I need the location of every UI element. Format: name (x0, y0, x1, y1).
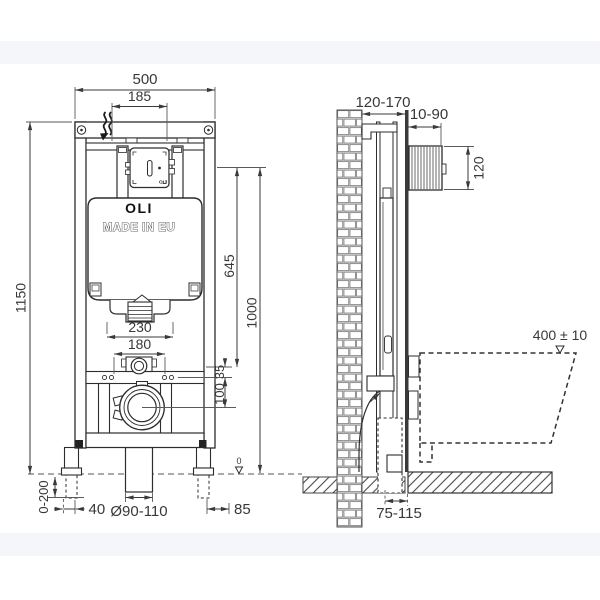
floor-level-marker: 0 (236, 456, 243, 474)
inlet-connector (122, 357, 157, 374)
installation-frame-drawing: OLI OLI MADE IN EU (0, 0, 600, 600)
dim-frame-depth: 120-170 (355, 94, 410, 114)
dim-bowl-height: 400 ± 10 (533, 327, 588, 353)
right-foot (194, 448, 214, 499)
dim-plate-height: 120 (444, 147, 487, 190)
dim-foot-overhang: 40 (54, 499, 105, 518)
side-view (303, 110, 576, 527)
dim-1000-label: 1000 (244, 297, 260, 328)
floor-right (408, 472, 552, 493)
dim-bowl-height-label: 400 ± 10 (533, 327, 588, 343)
dim-645-label: 645 (221, 254, 237, 278)
dim-100-label: 100 (212, 383, 227, 405)
support-bar (367, 376, 394, 391)
dim-flush-plate-width-label: 185 (128, 88, 152, 104)
dim-foot-adjust-label: 0-200 (36, 480, 51, 513)
inspection-box: OLI (126, 148, 175, 188)
flush-slot (148, 161, 153, 177)
dim-drain-diameter: Ø90-110 (110, 493, 167, 520)
level-triangle-icon (236, 467, 243, 474)
dim-40-label: 40 (89, 501, 106, 518)
front-view: OLI OLI MADE IN EU (28, 112, 302, 498)
dim-180-label: 180 (128, 336, 152, 352)
toilet-bowl-outline (420, 353, 576, 462)
dim-reference-height: 1000 (244, 168, 261, 473)
dim-total-height-label: 1150 (13, 283, 29, 313)
bowl-fixings (409, 356, 420, 419)
cistern: OLI MADE IN EU (88, 198, 202, 322)
inspection-box-brand-text: OLI (159, 180, 168, 186)
cistern-origin-text: MADE IN EU (103, 222, 176, 234)
flush-unit-box (409, 146, 446, 190)
dim-total-width-label: 500 (132, 71, 157, 88)
cistern-brand-text: OLI (125, 200, 153, 216)
top-band (0, 41, 600, 64)
dim-front-clearance-label: 10-90 (410, 106, 448, 123)
dim-drain-diameter-label: Ø90-110 (110, 503, 167, 520)
dim-bracket-width: 230 (107, 319, 173, 337)
side-cistern (380, 188, 393, 376)
technical-drawing-page: OLI OLI MADE IN EU (0, 0, 600, 600)
bottom-band (0, 533, 600, 556)
left-strut (99, 384, 110, 434)
dim-total-height: 1150 (13, 122, 73, 474)
dim-plate-height-label: 120 (471, 156, 487, 180)
bottom-rail (76, 433, 207, 448)
dim-side-offset: 85 (207, 499, 251, 518)
dim-depth-range-label: 120-170 (355, 94, 410, 111)
bowl-level-triangle-icon (556, 346, 564, 353)
dim-230-label: 230 (128, 319, 152, 335)
brick-wall (337, 110, 362, 527)
dim-35-label: 35 (212, 365, 227, 379)
left-foot (62, 448, 82, 499)
dim-outlet-wall-offset: 75-115 (376, 490, 422, 522)
dim-outlet-offset-label: 75-115 (376, 505, 422, 522)
dim-85-label: 85 (234, 501, 251, 518)
floor-zero-label: 0 (236, 456, 241, 466)
dim-front-clearance: 10-90 (409, 106, 449, 145)
drain-connector (113, 382, 164, 430)
drain-pipe (126, 448, 153, 493)
finished-wall-line (405, 110, 409, 472)
